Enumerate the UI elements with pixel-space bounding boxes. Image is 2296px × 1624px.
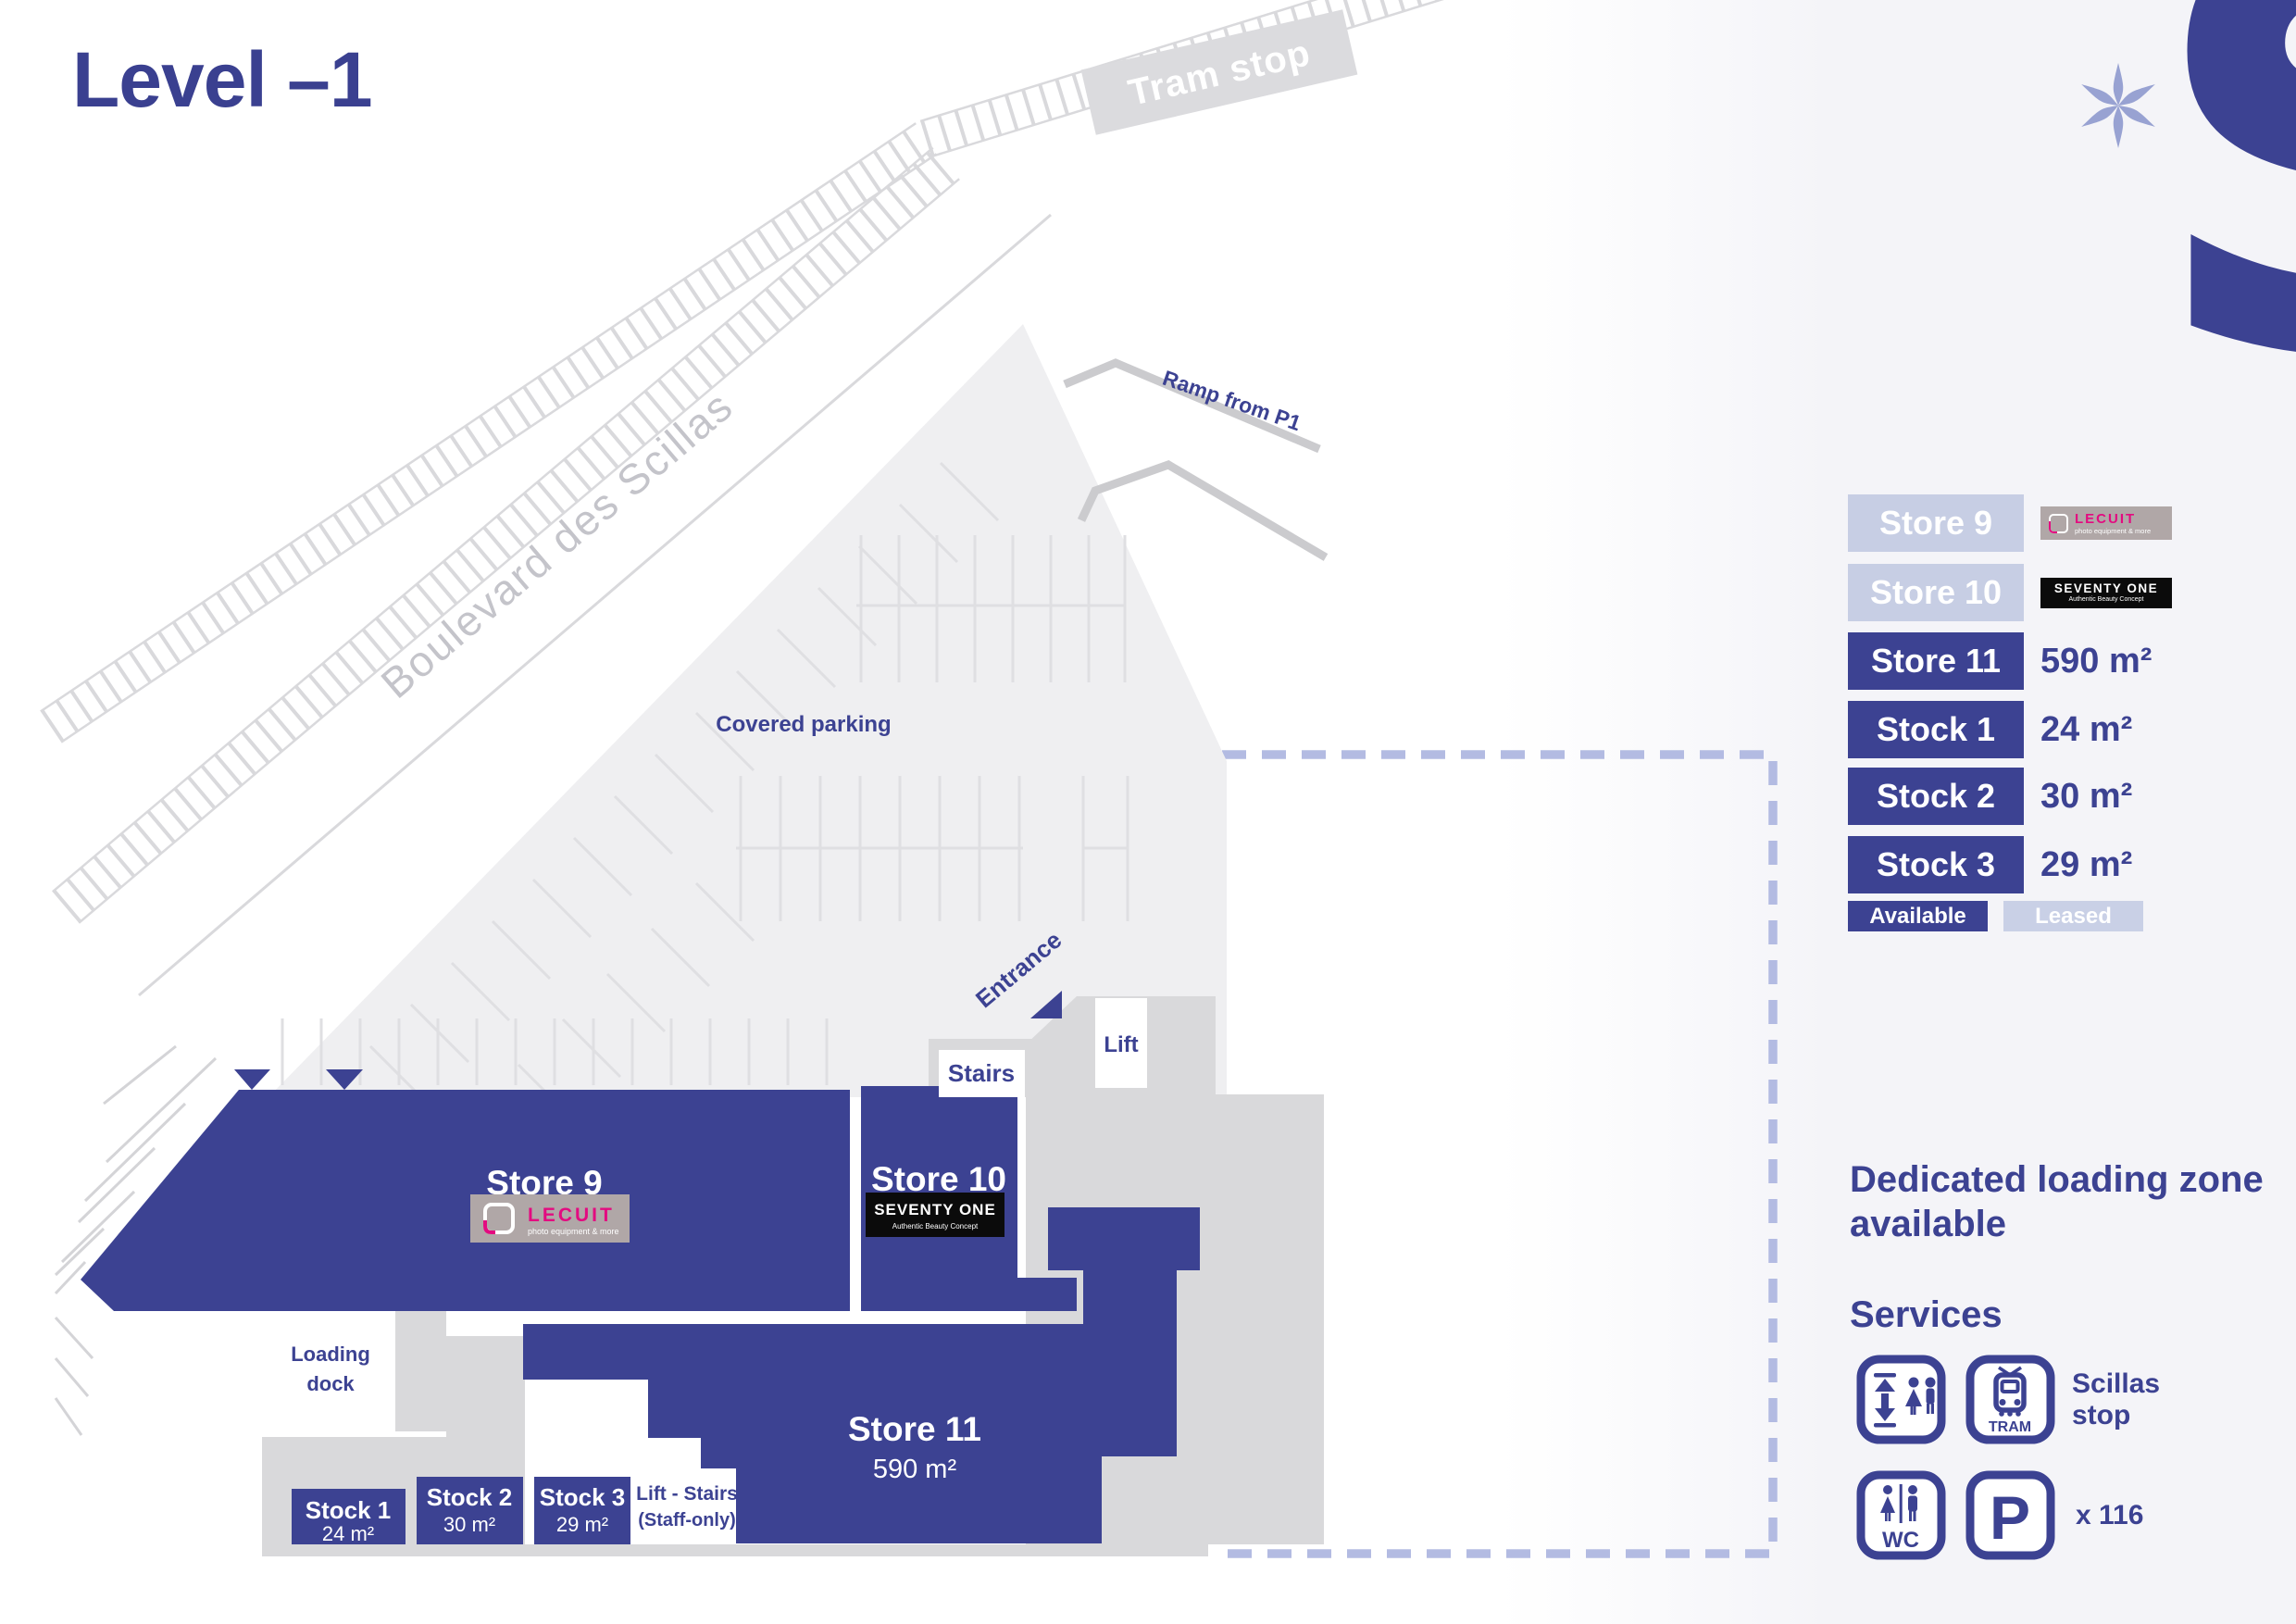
legend-chip-store10: Store 10 bbox=[1848, 564, 2024, 621]
legend-chip-store11: Store 11 bbox=[1848, 632, 2024, 690]
svg-text:Store 10: Store 10 bbox=[871, 1160, 1006, 1198]
page-title: Level –1 bbox=[72, 35, 372, 125]
seventyone-logo: SEVENTY ONE Authentic Beauty Concept bbox=[2040, 578, 2172, 608]
lift-icon bbox=[1856, 1355, 1946, 1444]
svg-text:Lift: Lift bbox=[1104, 1032, 1138, 1057]
lecuit-bracket-icon bbox=[2049, 514, 2068, 533]
leased-badge: Leased bbox=[2003, 901, 2143, 931]
services-title: Services bbox=[1850, 1294, 2003, 1336]
svg-text:photo equipment & more: photo equipment & more bbox=[528, 1227, 619, 1236]
svg-text:Stock 2: Stock 2 bbox=[427, 1483, 513, 1511]
svg-text:24 m²: 24 m² bbox=[322, 1522, 374, 1545]
loading-zone-note: Dedicated loading zone available bbox=[1850, 1157, 2296, 1246]
legend-row-stock2: Stock 2 30 m² bbox=[1848, 768, 2132, 825]
svg-text:Stock 3: Stock 3 bbox=[540, 1483, 626, 1511]
boulevard-label: Boulevard des Scillas bbox=[372, 381, 742, 707]
legend-area-stock2: 30 m² bbox=[2040, 777, 2132, 817]
store-9-door-marker bbox=[234, 1069, 270, 1090]
page: S bbox=[0, 0, 2296, 1624]
svg-text:SEVENTY ONE: SEVENTY ONE bbox=[874, 1201, 996, 1218]
store-9-shape bbox=[81, 1090, 850, 1311]
legend-area-stock1: 24 m² bbox=[2040, 710, 2132, 750]
svg-text:Ramp from P1: Ramp from P1 bbox=[1160, 366, 1304, 435]
covered-parking-area bbox=[268, 324, 1227, 1097]
svg-text:LECUIT: LECUIT bbox=[528, 1205, 615, 1226]
parking-icon: P bbox=[1965, 1470, 2055, 1560]
staff-lift-box bbox=[639, 1468, 736, 1543]
svg-text:Stairs: Stairs bbox=[948, 1059, 1015, 1087]
legend-row-store10: Store 10 SEVENTY ONE Authentic Beauty Co… bbox=[1848, 564, 2172, 621]
legend-chip-store9: Store 9 bbox=[1848, 494, 2024, 552]
svg-text:P: P bbox=[1990, 1483, 2030, 1552]
parking-count-label: x 116 bbox=[2076, 1500, 2143, 1531]
store-11-arm bbox=[1048, 1207, 1200, 1270]
legend-row-stock1: Stock 1 24 m² bbox=[1848, 701, 2132, 758]
available-badge: Available bbox=[1848, 901, 1988, 931]
legend-area-store11: 590 m² bbox=[2040, 642, 2152, 681]
svg-text:(Staff-only): (Staff-only) bbox=[638, 1510, 736, 1530]
legend-row-store9: Store 9 LECUIT photo equipment & more bbox=[1848, 494, 2172, 552]
svg-text:Authentic Beauty Concept: Authentic Beauty Concept bbox=[892, 1222, 979, 1230]
legend-row-store11: Store 11 590 m² bbox=[1848, 632, 2152, 690]
legend-chip-stock2: Stock 2 bbox=[1848, 768, 2024, 825]
wc-icon: WC bbox=[1856, 1470, 1946, 1560]
lecuit-logo: LECUIT photo equipment & more bbox=[2040, 506, 2172, 540]
ramp-label: Ramp from P1 bbox=[1160, 366, 1304, 435]
svg-text:Loading: Loading bbox=[291, 1343, 370, 1366]
tram-icon: TRAM bbox=[1965, 1355, 2055, 1444]
legend-area-stock3: 29 m² bbox=[2040, 845, 2132, 885]
legend-chip-stock1: Stock 1 bbox=[1848, 701, 2024, 758]
legend-row-stock3: Stock 3 29 m² bbox=[1848, 836, 2132, 893]
seventyone-logo: SEVENTY ONE Authentic Beauty Concept bbox=[866, 1193, 1004, 1237]
store-10-extension bbox=[1017, 1278, 1077, 1311]
svg-text:Lift - Stairs: Lift - Stairs bbox=[636, 1483, 738, 1505]
lecuit-logo: LECUIT photo equipment & more bbox=[470, 1194, 630, 1243]
svg-text:30 m²: 30 m² bbox=[443, 1513, 495, 1536]
svg-text:Stock 1: Stock 1 bbox=[306, 1496, 392, 1524]
svg-text:Store 11: Store 11 bbox=[848, 1410, 981, 1448]
svg-text:TRAM: TRAM bbox=[1989, 1419, 2031, 1435]
tram-stop-service-label: Scillas stop bbox=[2072, 1368, 2211, 1431]
svg-text:dock: dock bbox=[306, 1372, 355, 1395]
legend-chip-stock3: Stock 3 bbox=[1848, 836, 2024, 893]
svg-text:WC: WC bbox=[1882, 1528, 1919, 1553]
covered-parking-label: Covered parking bbox=[716, 712, 891, 737]
svg-text:29 m²: 29 m² bbox=[556, 1513, 608, 1536]
svg-text:590 m²: 590 m² bbox=[873, 1455, 957, 1484]
svg-text:Boulevard des Scillas: Boulevard des Scillas bbox=[372, 381, 742, 707]
